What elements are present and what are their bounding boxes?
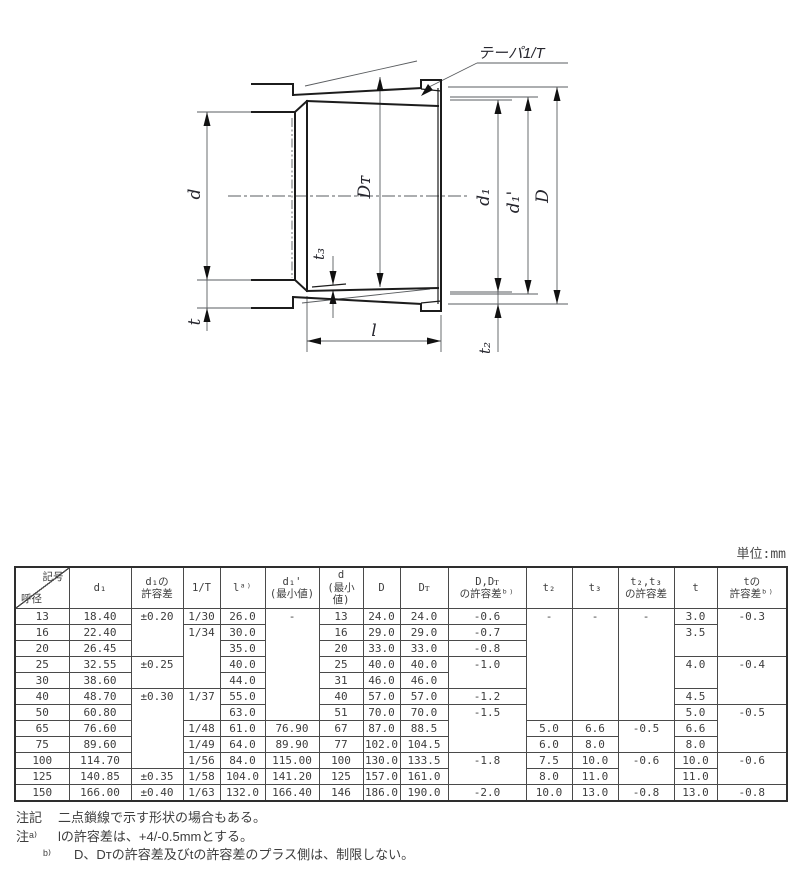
table-cell: 46.0 xyxy=(363,673,400,689)
table-cell: - xyxy=(265,609,319,721)
table-cell: 35.0 xyxy=(220,641,265,657)
spec-table: 記号呼径d₁d₁の 許容差1/Tlᵃ⁾d₁' (最小値)d (最小値)DDᴛD,… xyxy=(14,566,788,802)
column-header-2: 1/T xyxy=(183,567,220,609)
table-cell: -0.8 xyxy=(717,785,787,802)
table-cell: 3.0 xyxy=(674,609,717,625)
table-cell: 166.40 xyxy=(265,785,319,802)
table-cell: 70.0 xyxy=(400,705,448,721)
table-cell: 89.90 xyxy=(265,737,319,753)
table-cell: 40 xyxy=(15,689,69,705)
table-cell: -0.8 xyxy=(618,785,674,802)
table-cell: 63.0 xyxy=(220,705,265,721)
table-cell: -1.0 xyxy=(448,657,526,689)
table-cell: -1.2 xyxy=(448,689,526,705)
column-header-0: d₁ xyxy=(69,567,131,609)
table-cell: 60.80 xyxy=(69,705,131,721)
note-b-label: ᵇ⁾ xyxy=(43,846,74,865)
column-header-5: d (最小値) xyxy=(319,567,363,609)
spec-table-wrap: 記号呼径d₁d₁の 許容差1/Tlᵃ⁾d₁' (最小値)d (最小値)DDᴛD,… xyxy=(14,566,786,802)
note-remark-label: 注記 xyxy=(16,809,58,828)
table-cell: 11.0 xyxy=(572,769,618,785)
table-row: 6576.601/4861.076.906787.088.55.06.6-0.5… xyxy=(15,721,787,737)
table-cell: 30 xyxy=(15,673,69,689)
note-remark-text: 二点鎖線で示す形状の場合もある。 xyxy=(58,809,266,828)
table-cell: 18.40 xyxy=(69,609,131,625)
table-cell: 6.0 xyxy=(526,737,572,753)
table-cell: 104.0 xyxy=(220,769,265,785)
taper-label: テーパ1/T xyxy=(478,45,546,62)
unit-label: 単位:mm xyxy=(14,543,786,562)
note-a-text: lの許容差は、+4/-0.5mmとする。 xyxy=(58,828,253,847)
table-cell: - xyxy=(572,609,618,721)
table-cell: 11.0 xyxy=(674,769,717,785)
table-cell: 26.45 xyxy=(69,641,131,657)
table-row: 150166.00±0.401/63132.0166.40146186.0190… xyxy=(15,785,787,802)
table-cell: 70.0 xyxy=(363,705,400,721)
table-cell: 100 xyxy=(319,753,363,769)
table-cell: 76.60 xyxy=(69,721,131,737)
spec-table-head: 記号呼径d₁d₁の 許容差1/Tlᵃ⁾d₁' (最小値)d (最小値)DDᴛD,… xyxy=(15,567,787,609)
table-cell: 13 xyxy=(319,609,363,625)
table-cell: 38.60 xyxy=(69,673,131,689)
technical-drawing: テーパ1/T d t Dᴛ t₃ l d₁ d₁' D t₂ xyxy=(0,0,800,470)
column-header-8: D,Dᴛ の許容差ᵇ⁾ xyxy=(448,567,526,609)
table-cell: 31 xyxy=(319,673,363,689)
table-cell: -0.8 xyxy=(448,641,526,657)
table-row: 1318.40±0.201/3026.0-1324.024.0-0.6---3.… xyxy=(15,609,787,625)
table-cell: 8.0 xyxy=(526,769,572,785)
table-cell: ±0.40 xyxy=(131,785,183,802)
table-cell: 26.0 xyxy=(220,609,265,625)
table-cell: 51 xyxy=(319,705,363,721)
table-cell: 25 xyxy=(319,657,363,673)
table-cell: 20 xyxy=(319,641,363,657)
corner-symbol-label: 記号 xyxy=(43,571,64,584)
table-cell: 1/58 xyxy=(183,769,220,785)
column-header-13: tの 許容差ᵇ⁾ xyxy=(717,567,787,609)
table-cell: 40.0 xyxy=(400,657,448,673)
note-b: ᵇ⁾ D、Dᴛの許容差及びtの許容差のプラス側は、制限しない。 xyxy=(43,846,414,865)
table-cell: 4.0 xyxy=(674,657,717,689)
column-header-10: t₃ xyxy=(572,567,618,609)
table-cell: 140.85 xyxy=(69,769,131,785)
table-cell: 24.0 xyxy=(400,609,448,625)
table-cell: ±0.20 xyxy=(131,609,183,657)
column-header-12: t xyxy=(674,567,717,609)
table-cell: 8.0 xyxy=(572,737,618,753)
table-cell: 157.0 xyxy=(363,769,400,785)
table-cell: 125 xyxy=(319,769,363,785)
table-cell: 64.0 xyxy=(220,737,265,753)
table-cell: 16 xyxy=(15,625,69,641)
table-cell: 40 xyxy=(319,689,363,705)
table-cell: 48.70 xyxy=(69,689,131,705)
table-cell: -0.5 xyxy=(717,705,787,753)
table-cell: 32.55 xyxy=(69,657,131,673)
dim-label-t3: t₃ xyxy=(310,248,328,260)
table-cell: -1.8 xyxy=(448,753,526,785)
note-remark: 注記 二点鎖線で示す形状の場合もある。 xyxy=(16,809,414,828)
table-cell: 100 xyxy=(15,753,69,769)
table-row: 100114.701/5684.0115.00100130.0133.5-1.8… xyxy=(15,753,787,769)
table-cell: 65 xyxy=(15,721,69,737)
table-cell: 13 xyxy=(15,609,69,625)
table-cell: 102.0 xyxy=(363,737,400,753)
table-cell: 25 xyxy=(15,657,69,673)
table-cell: 61.0 xyxy=(220,721,265,737)
table-cell: 6.6 xyxy=(572,721,618,737)
table-cell: ±0.35 xyxy=(131,769,183,785)
table-cell: 133.5 xyxy=(400,753,448,769)
table-cell: 89.60 xyxy=(69,737,131,753)
column-header-1: d₁の 許容差 xyxy=(131,567,183,609)
table-cell: -0.6 xyxy=(448,609,526,625)
table-cell: 20 xyxy=(15,641,69,657)
table-cell: 1/49 xyxy=(183,737,220,753)
table-cell: 161.0 xyxy=(400,769,448,785)
table-cell: 46.0 xyxy=(400,673,448,689)
dim-label-l: l xyxy=(371,321,376,341)
page: テーパ1/T d t Dᴛ t₃ l d₁ d₁' D t₂ 単位:mm 記号呼… xyxy=(0,0,800,893)
table-cell: 125 xyxy=(15,769,69,785)
table-cell: 40.0 xyxy=(220,657,265,673)
table-cell: -1.5 xyxy=(448,705,526,753)
table-cell: 150 xyxy=(15,785,69,802)
table-cell: 57.0 xyxy=(400,689,448,705)
dim-label-d: d xyxy=(185,188,205,199)
table-cell: 114.70 xyxy=(69,753,131,769)
table-cell: 33.0 xyxy=(363,641,400,657)
table-cell: 130.0 xyxy=(363,753,400,769)
corner-cell: 記号呼径 xyxy=(15,567,69,609)
dim-label-d1-prime: d₁' xyxy=(504,191,524,213)
column-header-3: lᵃ⁾ xyxy=(220,567,265,609)
table-cell: -0.6 xyxy=(717,753,787,785)
table-cell: 67 xyxy=(319,721,363,737)
table-cell: -0.6 xyxy=(618,753,674,785)
table-cell: 5.0 xyxy=(526,721,572,737)
note-b-text: D、Dᴛの許容差及びtの許容差のプラス側は、制限しない。 xyxy=(74,846,414,865)
column-header-4: d₁' (最小値) xyxy=(265,567,319,609)
column-header-6: D xyxy=(363,567,400,609)
table-cell: 186.0 xyxy=(363,785,400,802)
table-cell: 84.0 xyxy=(220,753,265,769)
table-cell: 57.0 xyxy=(363,689,400,705)
table-cell: 166.00 xyxy=(69,785,131,802)
socket-outline xyxy=(252,80,441,311)
table-cell: 132.0 xyxy=(220,785,265,802)
table-cell: 115.00 xyxy=(265,753,319,769)
table-cell: 1/48 xyxy=(183,721,220,737)
column-header-7: Dᴛ xyxy=(400,567,448,609)
table-cell: 3.5 xyxy=(674,625,717,657)
table-cell: 190.0 xyxy=(400,785,448,802)
table-cell: -0.4 xyxy=(717,657,787,705)
spec-table-body: 1318.40±0.201/3026.0-1324.024.0-0.6---3.… xyxy=(15,609,787,802)
table-cell: 7.5 xyxy=(526,753,572,769)
table-cell: -0.7 xyxy=(448,625,526,641)
table-cell: 10.0 xyxy=(572,753,618,769)
table-cell: 30.0 xyxy=(220,625,265,641)
table-cell: ±0.30 xyxy=(131,689,183,769)
table-cell: 50 xyxy=(15,705,69,721)
note-a: 注ᵃ⁾ lの許容差は、+4/-0.5mmとする。 xyxy=(16,828,414,847)
table-cell: 77 xyxy=(319,737,363,753)
table-cell: -0.3 xyxy=(717,609,787,657)
table-cell: 88.5 xyxy=(400,721,448,737)
table-cell: ±0.25 xyxy=(131,657,183,689)
table-cell: 13.0 xyxy=(674,785,717,802)
table-cell: 40.0 xyxy=(363,657,400,673)
corner-nominal-label: 呼径 xyxy=(21,593,42,606)
table-cell: 10.0 xyxy=(526,785,572,802)
column-header-11: t₂,t₃ の許容差 xyxy=(618,567,674,609)
table-cell: 76.90 xyxy=(265,721,319,737)
table-cell: 8.0 xyxy=(674,737,717,753)
table-cell: 75 xyxy=(15,737,69,753)
table-cell: 33.0 xyxy=(400,641,448,657)
table-cell: 1/56 xyxy=(183,753,220,769)
dim-label-t: t xyxy=(185,318,205,325)
table-cell: - xyxy=(526,609,572,721)
table-cell: 29.0 xyxy=(363,625,400,641)
table-cell: - xyxy=(618,609,674,721)
column-header-9: t₂ xyxy=(526,567,572,609)
table-cell: 24.0 xyxy=(363,609,400,625)
table-cell: 104.5 xyxy=(400,737,448,753)
dim-label-d1: d₁ xyxy=(474,188,494,206)
table-cell: 13.0 xyxy=(572,785,618,802)
table-cell: 87.0 xyxy=(363,721,400,737)
table-cell: 16 xyxy=(319,625,363,641)
table-cell: 1/30 xyxy=(183,609,220,625)
table-cell: 22.40 xyxy=(69,625,131,641)
table-cell: 5.0 xyxy=(674,705,717,721)
dim-label-dt: Dᴛ xyxy=(355,175,375,200)
dim-label-D: D xyxy=(533,189,553,204)
table-cell: -0.5 xyxy=(618,721,674,753)
table-cell: 146 xyxy=(319,785,363,802)
dim-label-t2: t₂ xyxy=(476,342,494,354)
table-cell: 44.0 xyxy=(220,673,265,689)
table-cell: 1/37 xyxy=(183,689,220,721)
table-cell: 141.20 xyxy=(265,769,319,785)
table-cell: 6.6 xyxy=(674,721,717,737)
table-cell: 10.0 xyxy=(674,753,717,769)
table-cell: 55.0 xyxy=(220,689,265,705)
table-cell: 1/63 xyxy=(183,785,220,802)
table-cell: -2.0 xyxy=(448,785,526,802)
table-cell: 4.5 xyxy=(674,689,717,705)
table-cell: 1/34 xyxy=(183,625,220,689)
notes: 注記 二点鎖線で示す形状の場合もある。 注ᵃ⁾ lの許容差は、+4/-0.5mm… xyxy=(16,809,414,865)
note-a-label: 注ᵃ⁾ xyxy=(16,828,58,847)
table-cell: 29.0 xyxy=(400,625,448,641)
